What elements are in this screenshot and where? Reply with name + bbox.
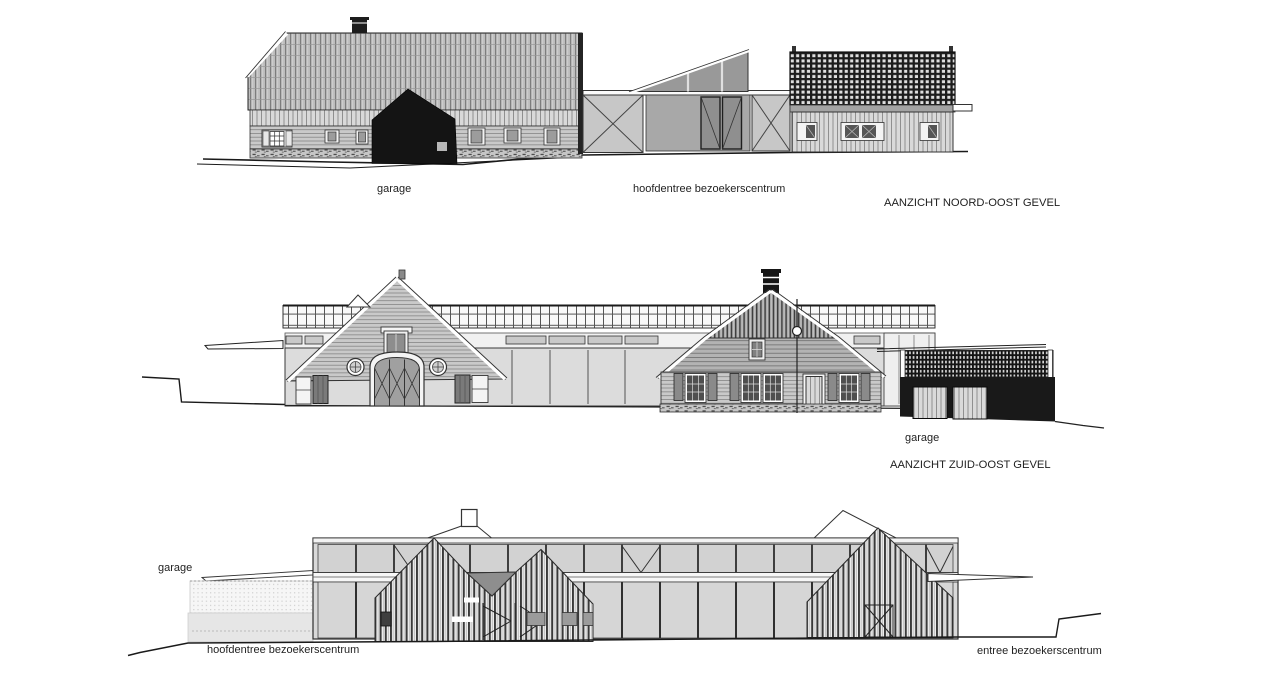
clerestory bbox=[629, 50, 750, 94]
attic-window bbox=[381, 327, 412, 353]
chimney bbox=[350, 17, 369, 33]
garage-building-middle bbox=[877, 345, 1104, 429]
title-noord-oost: AANZICHT NOORD-OOST GEVEL bbox=[884, 197, 1060, 209]
trellis-band bbox=[902, 351, 1053, 378]
title-zuid-oost: AANZICHT ZUID-OOST GEVEL bbox=[890, 459, 1051, 471]
terrain-line bbox=[1055, 422, 1104, 429]
label-garage-bottom: garage bbox=[158, 562, 192, 574]
label-entree-bottom: entree bezoekerscentrum bbox=[977, 645, 1102, 657]
elevation-noord-oost: garage hoofdentree bezoekerscentrum AANZ… bbox=[197, 17, 1060, 209]
foundation-strip bbox=[660, 404, 881, 412]
canopy-blade-right bbox=[928, 574, 1033, 582]
garage-window bbox=[437, 142, 447, 151]
small-window bbox=[381, 612, 391, 626]
lattice-roof bbox=[790, 52, 955, 105]
elevation-bottom: garage hoofdentree bezoekerscentrum entr… bbox=[128, 510, 1102, 658]
drawing-sheet: garage hoofdentree bezoekerscentrum AANZ… bbox=[0, 0, 1280, 700]
canopy-blade-left bbox=[205, 341, 283, 350]
finial bbox=[399, 270, 405, 279]
arched-portal bbox=[370, 352, 424, 406]
attic-window bbox=[749, 339, 765, 360]
architectural-elevations-drawing: garage hoofdentree bezoekerscentrum AANZ… bbox=[0, 0, 1280, 700]
roof-outlines bbox=[422, 510, 901, 542]
round-window bbox=[430, 359, 447, 376]
label-hoofdentree-bottom: hoofdentree bezoekerscentrum bbox=[207, 644, 359, 656]
terrain-line bbox=[142, 377, 285, 405]
lattice-roof-building bbox=[790, 46, 972, 152]
elevation-zuid-oost: garage AANZICHT ZUID-OOST GEVEL bbox=[142, 269, 1104, 471]
canopy-blade bbox=[202, 571, 313, 582]
garage-faint bbox=[188, 571, 313, 642]
link-entrance bbox=[583, 50, 790, 153]
round-window bbox=[347, 359, 364, 376]
barn-end-wall bbox=[578, 33, 583, 154]
label-garage-middle: garage bbox=[905, 432, 939, 444]
label-hoofdentree-top: hoofdentree bezoekerscentrum bbox=[633, 183, 785, 195]
dormer-outline bbox=[347, 295, 370, 307]
garage-door bbox=[913, 387, 947, 419]
roof-pipe bbox=[953, 105, 972, 112]
garage-door bbox=[953, 387, 987, 419]
label-garage-top: garage bbox=[377, 183, 411, 195]
